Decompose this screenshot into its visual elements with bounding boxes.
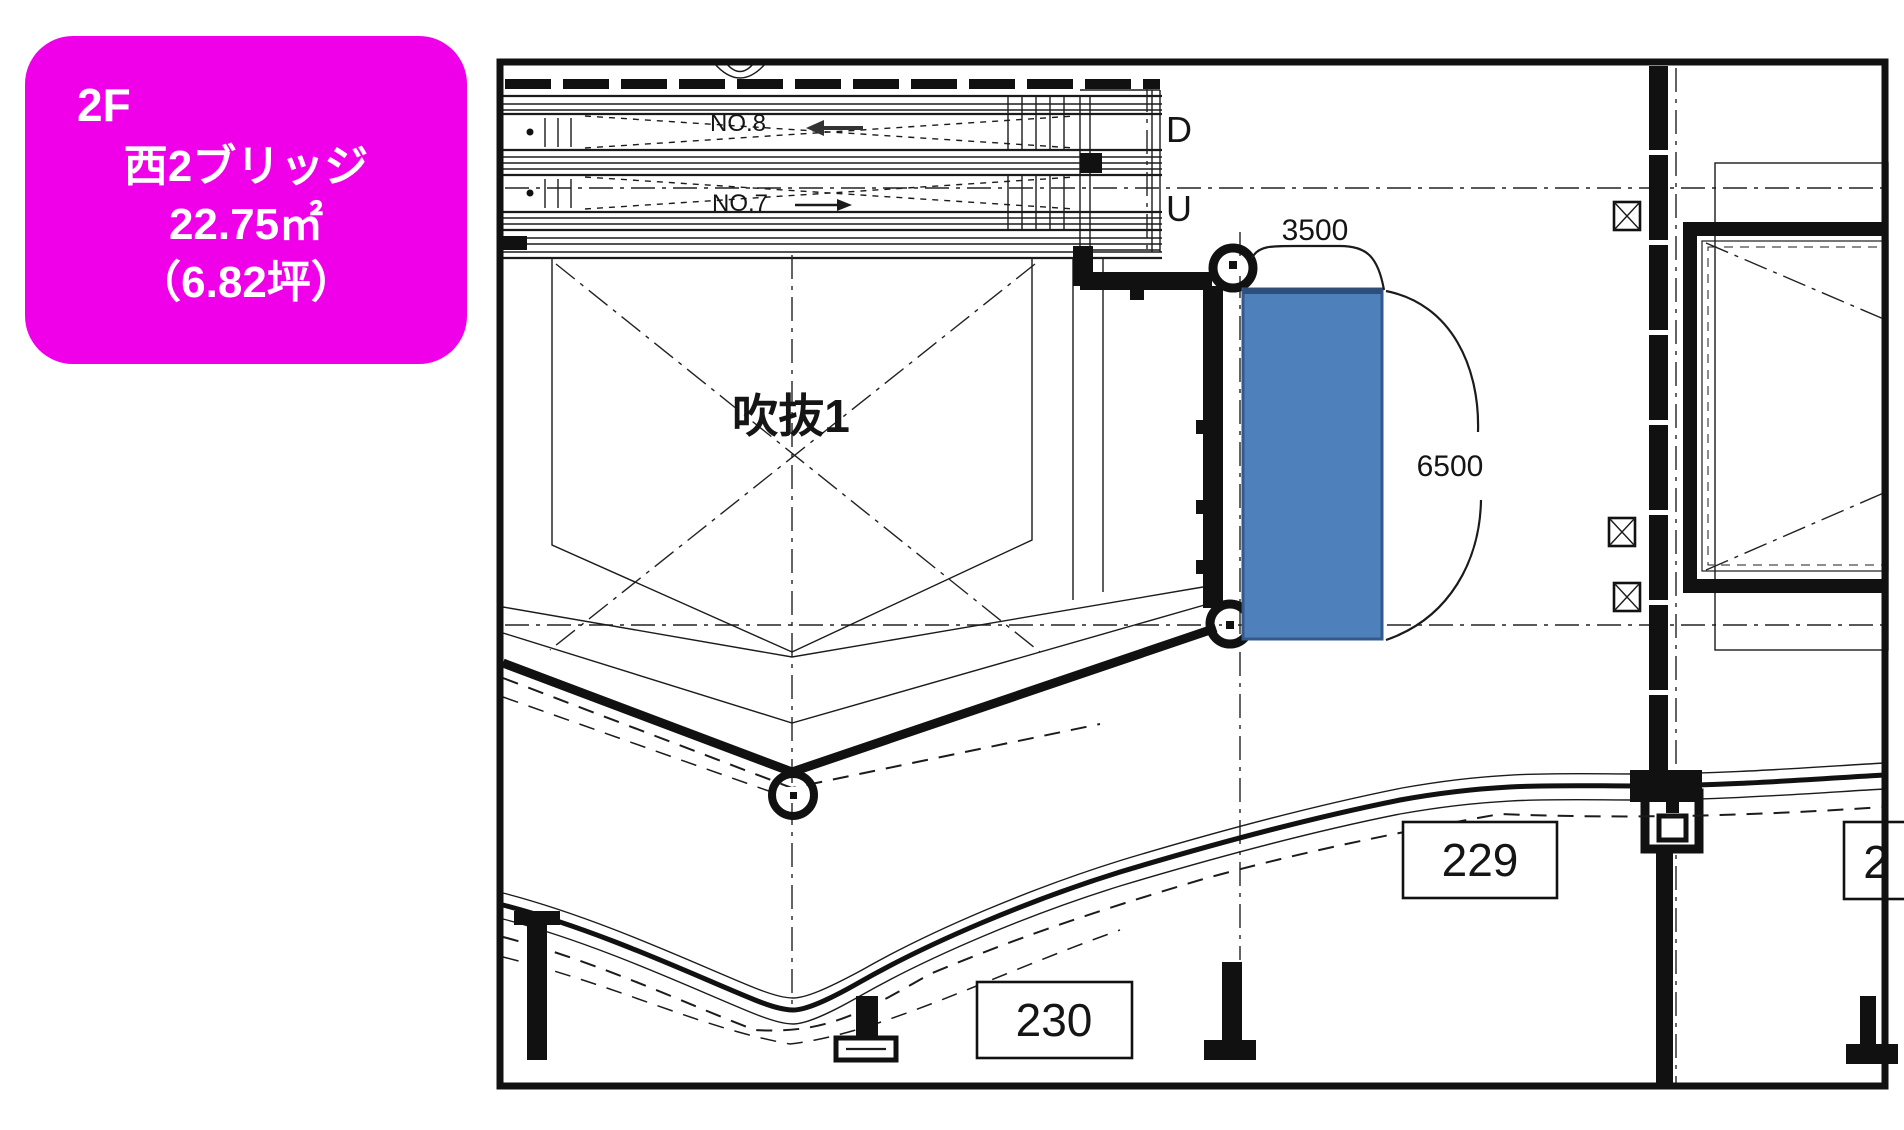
right-room — [1683, 163, 1888, 650]
height-dim-arc-top — [1386, 291, 1478, 432]
info-card-lines: 西2ブリッジ 22.75㎡ （6.82坪） — [25, 138, 467, 312]
area-label: 22.75㎡ — [25, 196, 467, 254]
boxed-cross-icon — [1609, 518, 1635, 546]
escalator-up-label: U — [1166, 188, 1192, 229]
boxed-cross-icon — [1614, 583, 1640, 611]
column — [1204, 962, 1256, 1060]
void-area: 吹抜1 — [503, 258, 1222, 795]
room-229: 229 — [1403, 822, 1557, 898]
escalator-down-label: D — [1166, 109, 1192, 150]
escalator-no8-label: NO.8 — [710, 110, 766, 137]
column-circle-vertex — [772, 774, 814, 816]
void-label: 吹抜1 — [732, 390, 850, 442]
escalator-no7-arrow — [795, 199, 852, 211]
escalator-no7-label: NO.7 — [712, 190, 768, 217]
room-229-label: 229 — [1442, 834, 1519, 886]
escalator-block: NO.8 NO.7 D U — [503, 63, 1192, 258]
slide-canvas: 2F 西2ブリッジ 22.75㎡ （6.82坪） — [0, 0, 1904, 1130]
bridge-name-label: 西2ブリッジ — [25, 138, 467, 196]
highlight-area — [1243, 289, 1382, 639]
column — [836, 996, 896, 1060]
room-labels: 229 230 2 — [977, 822, 1904, 1058]
floor-label: 2F — [77, 78, 131, 132]
room-230-label: 230 — [1016, 994, 1093, 1046]
width-dim-label: 3500 — [1282, 214, 1349, 247]
width-dim-brace — [1252, 246, 1384, 290]
drawing-frame — [500, 62, 1885, 1086]
room-partial: 2 — [1844, 822, 1904, 899]
column-circle-top — [1213, 248, 1253, 288]
highlight-group: 3500 6500 — [1243, 214, 1483, 640]
bridge-walls — [772, 246, 1253, 816]
boxed-cross-icon — [1614, 202, 1640, 230]
area-tsubo-label: （6.82坪） — [25, 254, 467, 312]
grid-lines — [505, 68, 1883, 1083]
boxed-cross-markers — [1609, 202, 1640, 611]
column — [1846, 996, 1898, 1064]
height-dim-arc-bottom — [1386, 500, 1481, 640]
room-230: 230 — [977, 982, 1132, 1058]
height-dim-label: 6500 — [1417, 450, 1484, 483]
info-card: 2F 西2ブリッジ 22.75㎡ （6.82坪） — [25, 36, 467, 364]
